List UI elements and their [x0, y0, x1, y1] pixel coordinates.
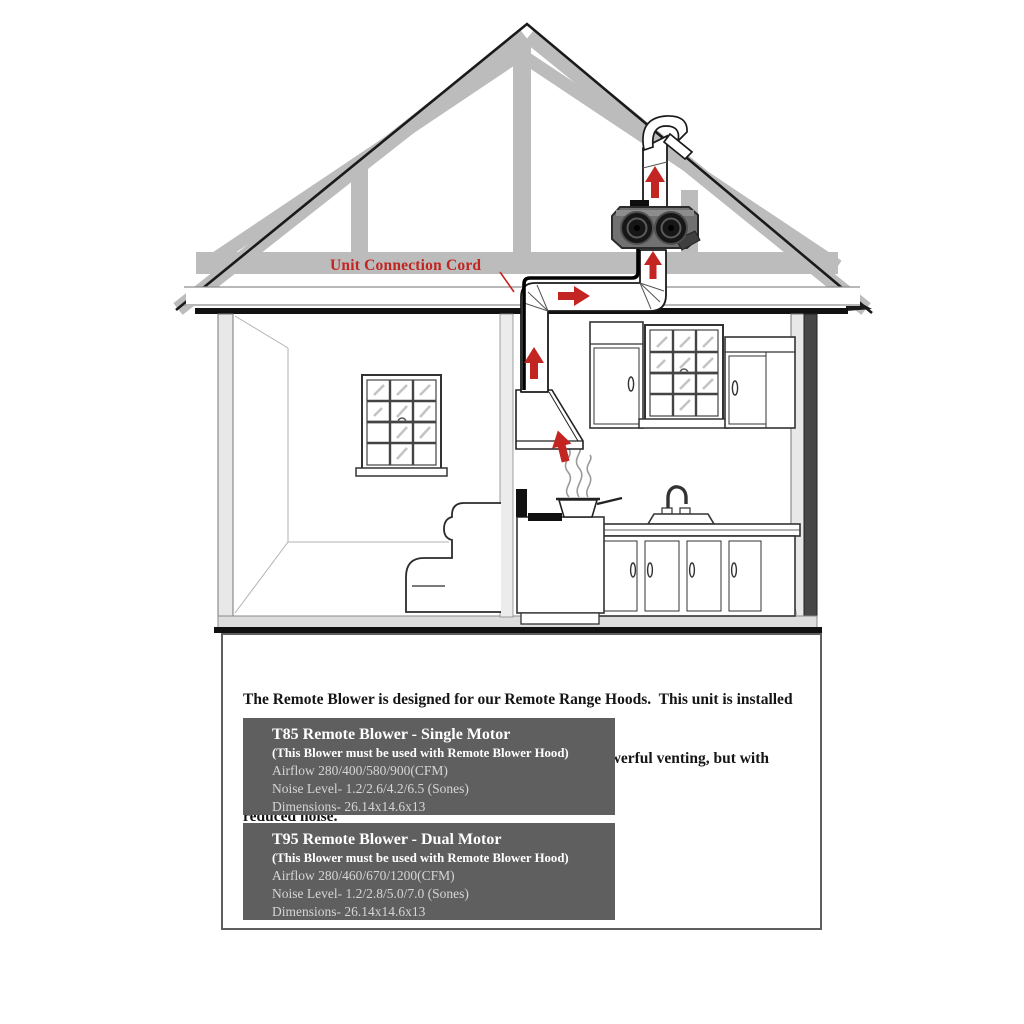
attic-blower-unit [612, 200, 700, 250]
right-wall-outer [804, 314, 817, 628]
product-note: (This Blower must be used with Remote Bl… [272, 745, 605, 762]
product-airflow: Airflow 280/400/580/900(CFM) [272, 762, 605, 780]
cooking-pot [556, 498, 622, 517]
unit-connection-cord-label: Unit Connection Cord [330, 257, 520, 275]
kitchen-sink [648, 487, 714, 524]
steam [565, 444, 590, 497]
wall-chase [516, 489, 527, 517]
blower-motor-right [655, 212, 687, 244]
window-sill [356, 468, 447, 476]
kitchen-counter [593, 524, 800, 536]
kitchen-window [639, 325, 729, 428]
roof-truss [178, 36, 866, 309]
window-sill [639, 419, 729, 428]
product-note: (This Blower must be used with Remote Bl… [272, 850, 605, 867]
kitchen-upper-cabinet-right [725, 337, 795, 428]
product-panel-t85: T85 Remote Blower - Single Motor (This B… [243, 718, 615, 815]
product-noise-level: Noise Level- 1.2/2.6/4.2/6.5 (Sones) [272, 780, 605, 798]
stove-burner [528, 513, 562, 521]
product-noise-level: Noise Level- 1.2/2.8/5.0/7.0 (Sones) [272, 885, 605, 903]
product-title: T95 Remote Blower - Dual Motor [272, 830, 605, 850]
remote-blower-diagram: Unit Connection Cord The Remote Blower i… [0, 0, 1024, 1024]
description-line-1: The Remote Blower is designed for our Re… [243, 690, 815, 710]
blower-motor-left [621, 212, 653, 244]
living-room-window [356, 375, 447, 476]
pot-handle [597, 498, 622, 504]
product-title: T85 Remote Blower - Single Motor [272, 725, 605, 745]
kitchen-base-cabinets [595, 536, 795, 616]
partition-wall [500, 314, 513, 617]
product-airflow: Airflow 280/460/670/1200(CFM) [272, 867, 605, 885]
kitchen-upper-cabinet-left [590, 322, 643, 428]
product-dimensions: Dimensions- 26.14x14.6x13 [272, 798, 605, 816]
left-post [351, 168, 368, 254]
floor [218, 616, 817, 628]
king-post [513, 42, 531, 254]
product-panel-t95: T95 Remote Blower - Dual Motor (This Blo… [243, 823, 615, 920]
sink-basin [648, 514, 714, 524]
couch [406, 503, 501, 612]
left-wall [218, 314, 233, 628]
range-hood [516, 390, 583, 449]
product-dimensions: Dimensions- 26.14x14.6x13 [272, 903, 605, 921]
